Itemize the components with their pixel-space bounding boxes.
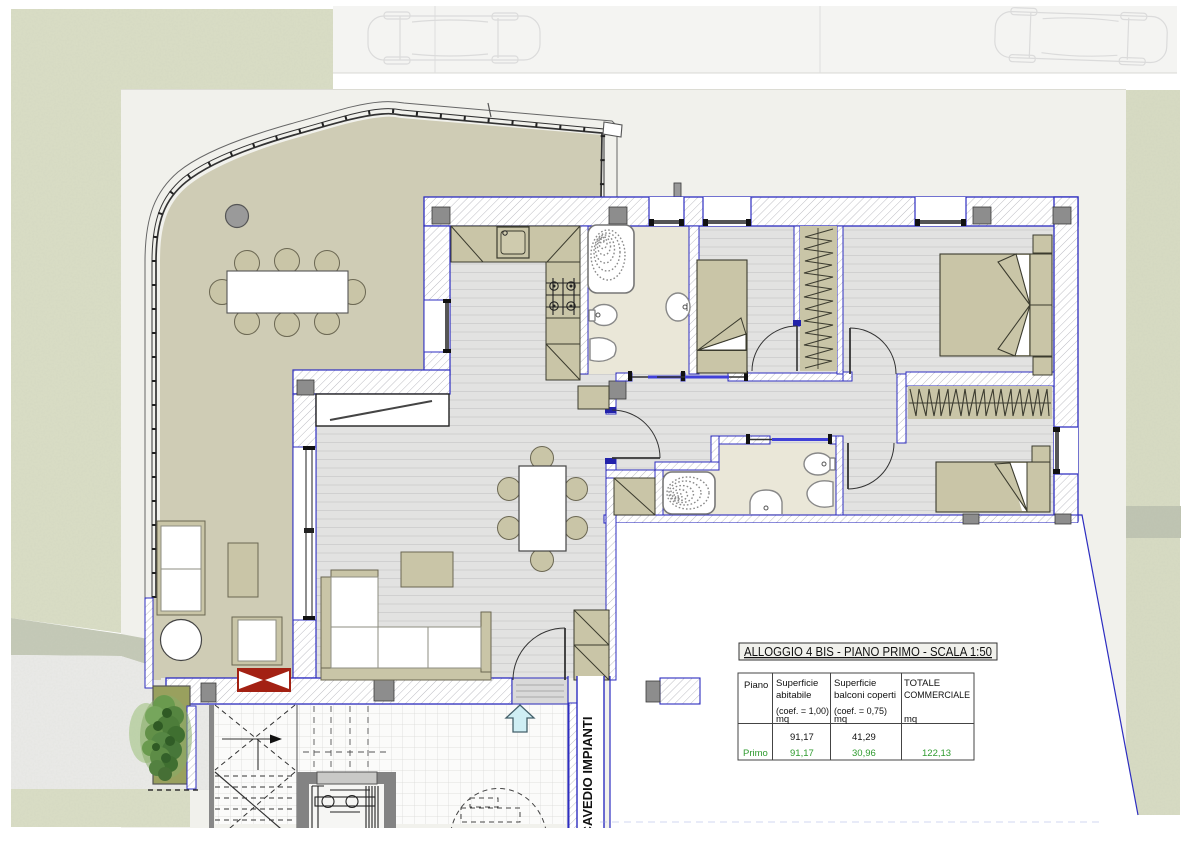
svg-text:balconi coperti: balconi coperti <box>834 690 896 701</box>
svg-text:122,13: 122,13 <box>922 748 951 759</box>
svg-text:mq: mq <box>834 714 847 725</box>
svg-text:91,17: 91,17 <box>790 748 814 759</box>
svg-text:CAVEDIO IMPIANTI: CAVEDIO IMPIANTI <box>580 717 595 836</box>
svg-text:mq: mq <box>904 714 917 725</box>
svg-text:COMMERCIALE: COMMERCIALE <box>904 690 970 701</box>
svg-text:Piano: Piano <box>744 680 768 691</box>
svg-text:41,29: 41,29 <box>852 732 876 743</box>
svg-text:91,17: 91,17 <box>790 732 814 743</box>
svg-text:30,96: 30,96 <box>852 748 876 759</box>
svg-text:Superficie: Superficie <box>834 678 876 689</box>
svg-text:mq: mq <box>776 714 789 725</box>
svg-text:TOTALE: TOTALE <box>904 678 940 689</box>
svg-text:ALLOGGIO 4 BIS - PIANO PRIMO -: ALLOGGIO 4 BIS - PIANO PRIMO - SCALA 1:5… <box>744 645 992 659</box>
svg-text:abitabile: abitabile <box>776 690 811 701</box>
svg-text:Primo: Primo <box>743 748 768 759</box>
svg-text:Superficie: Superficie <box>776 678 818 689</box>
